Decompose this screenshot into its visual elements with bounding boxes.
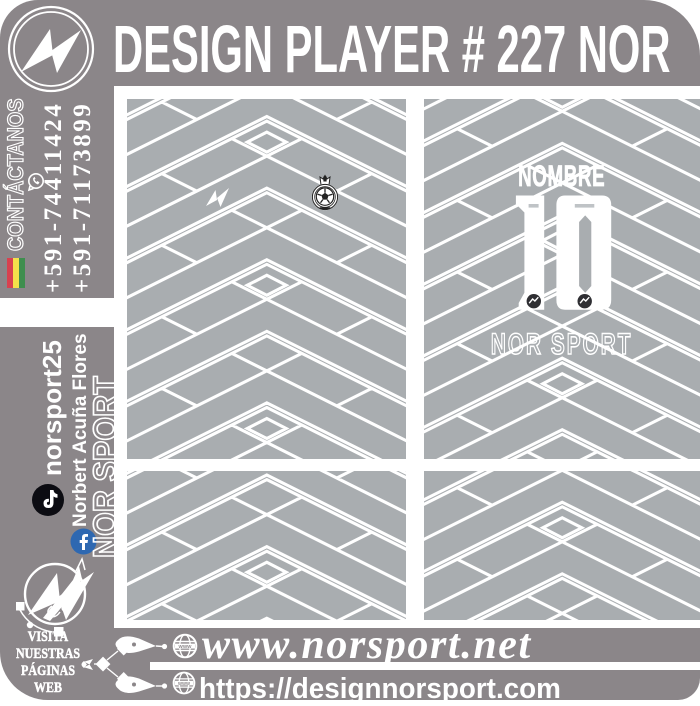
svg-text:WWW: WWW bbox=[178, 644, 192, 649]
svg-text:WWW: WWW bbox=[178, 681, 190, 686]
